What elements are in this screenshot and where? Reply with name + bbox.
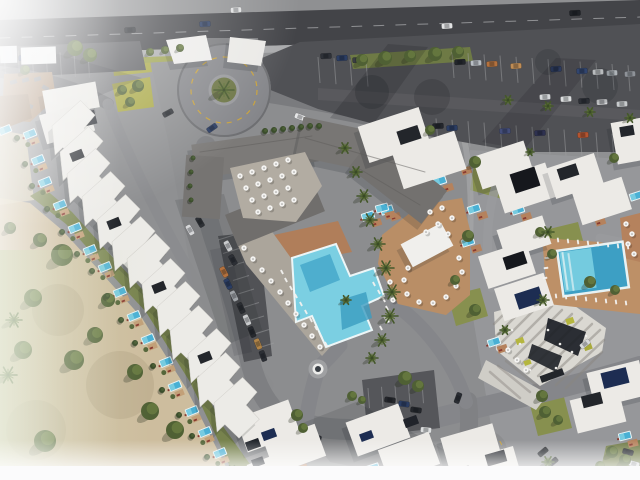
car	[577, 132, 588, 138]
car-glass	[572, 11, 577, 15]
palm-crown	[389, 315, 392, 318]
umbrella-pole	[432, 302, 434, 304]
tree-highlight	[361, 397, 366, 402]
palm-crown	[507, 99, 510, 102]
tree-highlight	[360, 55, 367, 62]
umbrella-pole	[625, 223, 627, 225]
umbrella-pole	[447, 233, 449, 235]
tree-highlight	[456, 47, 463, 54]
umbrella-pole	[458, 257, 460, 259]
palm-crown	[345, 299, 348, 302]
haze-bottom	[0, 440, 640, 468]
palm-crown	[344, 147, 347, 150]
umbrella-pole	[418, 301, 420, 303]
tree-highlight	[473, 305, 480, 312]
car	[470, 60, 481, 66]
palm-crown	[369, 219, 372, 222]
car	[320, 53, 331, 59]
palm-crown	[529, 151, 532, 154]
umbrella-pole	[311, 335, 313, 337]
umbrella-pole	[631, 233, 633, 235]
aerial-canvas	[0, 0, 640, 480]
circle	[315, 366, 321, 372]
tree-highlight	[172, 422, 183, 433]
tree-highlight	[453, 276, 459, 282]
palm-crown	[547, 231, 550, 234]
car-glass	[457, 60, 462, 64]
circle	[414, 79, 450, 115]
cypress-highlight	[178, 413, 181, 416]
car	[560, 96, 571, 102]
tree-highlight	[350, 392, 356, 398]
car-glass	[339, 56, 344, 60]
umbrella-pole	[461, 271, 463, 273]
umbrella-pole	[392, 299, 394, 301]
tree-highlight	[432, 48, 441, 57]
car-glass	[627, 72, 632, 76]
palm-crown	[542, 299, 545, 302]
car-glass	[581, 99, 586, 103]
car	[336, 55, 347, 61]
car	[534, 130, 545, 136]
car-glass	[542, 95, 547, 99]
umbrella-pole	[406, 293, 408, 295]
tree-highlight	[556, 416, 562, 422]
umbrella-pole	[389, 281, 391, 283]
car	[624, 71, 635, 77]
umbrella-pole	[403, 279, 405, 281]
car-glass	[502, 129, 507, 133]
tree-highlight	[613, 286, 619, 292]
car	[446, 125, 457, 131]
tree-highlight	[588, 277, 595, 284]
umbrella-pole	[295, 313, 297, 315]
haze-top-left	[0, 0, 300, 230]
car-glass	[579, 69, 584, 73]
tree-highlight	[295, 410, 302, 417]
circle	[511, 329, 514, 332]
tree-highlight	[416, 381, 423, 388]
aerial-screenshot	[0, 0, 640, 480]
palm-crown	[504, 329, 507, 332]
tree-highlight	[408, 51, 415, 58]
car-glass	[387, 398, 393, 403]
car	[454, 59, 465, 65]
car-glass	[413, 408, 419, 413]
car	[486, 61, 497, 67]
car	[576, 68, 587, 74]
cypress-highlight	[152, 364, 155, 367]
circle	[355, 75, 389, 109]
circle	[571, 351, 574, 354]
tree-highlight	[612, 154, 618, 160]
circle	[585, 335, 588, 338]
car-glass	[537, 131, 542, 135]
cypress-highlight	[318, 124, 321, 127]
car	[569, 10, 580, 16]
car	[441, 23, 452, 29]
umbrella-pole	[243, 247, 245, 249]
palm-crown	[385, 267, 388, 270]
tree-highlight	[550, 250, 556, 256]
tree-highlight	[428, 126, 434, 132]
car	[616, 101, 627, 107]
umbrella-pole	[287, 302, 289, 304]
umbrella-pole	[441, 207, 443, 209]
umbrella-pole	[633, 253, 635, 255]
umbrella-pole	[425, 231, 427, 233]
car-glass	[513, 64, 518, 68]
car-glass	[423, 428, 428, 432]
umbrella-pole	[507, 349, 509, 351]
circle	[555, 367, 558, 370]
umbrella-pole	[516, 359, 518, 361]
umbrella-pole	[451, 217, 453, 219]
tree-highlight	[543, 407, 550, 414]
palm-crown	[363, 195, 366, 198]
tree-highlight	[540, 391, 547, 398]
umbrella-pole	[279, 291, 281, 293]
tree-highlight	[402, 372, 411, 381]
cypress-highlight	[191, 434, 194, 437]
tree-highlight	[382, 52, 391, 61]
car-glass	[323, 54, 328, 58]
bottom-white-band	[0, 466, 640, 480]
palm-crown	[629, 117, 632, 120]
umbrella-pole	[303, 324, 305, 326]
umbrella-pole	[437, 223, 439, 225]
car-glass	[619, 102, 624, 106]
umbrella-pole	[429, 211, 431, 213]
umbrella-pole	[261, 269, 263, 271]
car	[420, 427, 431, 433]
car	[499, 128, 510, 134]
palm-crown	[377, 243, 380, 246]
umbrella-pole	[627, 243, 629, 245]
car-glass	[489, 62, 494, 66]
car-glass	[563, 97, 568, 101]
tree-highlight	[466, 231, 473, 238]
circle	[535, 49, 561, 75]
circle	[519, 343, 522, 346]
car-glass	[473, 61, 478, 65]
umbrella-pole	[270, 280, 272, 282]
car-glass	[444, 24, 449, 28]
cypress-highlight	[161, 388, 164, 391]
umbrella-pole	[445, 296, 447, 298]
palm-crown	[547, 105, 550, 108]
umbrella-pole	[407, 267, 409, 269]
umbrella-pole	[319, 346, 321, 348]
umbrella-pole	[455, 285, 457, 287]
car-glass	[449, 126, 454, 130]
palm-crown	[391, 291, 394, 294]
palm-crown	[355, 171, 358, 174]
car	[539, 94, 550, 100]
car	[510, 63, 521, 69]
car-glass	[435, 124, 440, 128]
car-glass	[580, 133, 585, 137]
cypress-highlight	[309, 124, 312, 127]
circle	[547, 329, 550, 332]
umbrella-pole	[252, 258, 254, 260]
tree-highlight	[473, 157, 480, 164]
palm-crown	[589, 111, 592, 114]
palm-crown	[381, 339, 384, 342]
tree-highlight	[301, 424, 307, 430]
circle	[559, 343, 562, 346]
tree-highlight	[538, 228, 544, 234]
cypress-highlight	[300, 125, 303, 128]
car-glass	[401, 402, 407, 407]
umbrella-pole	[525, 369, 527, 371]
palm-crown	[371, 357, 374, 360]
circle	[582, 68, 618, 104]
